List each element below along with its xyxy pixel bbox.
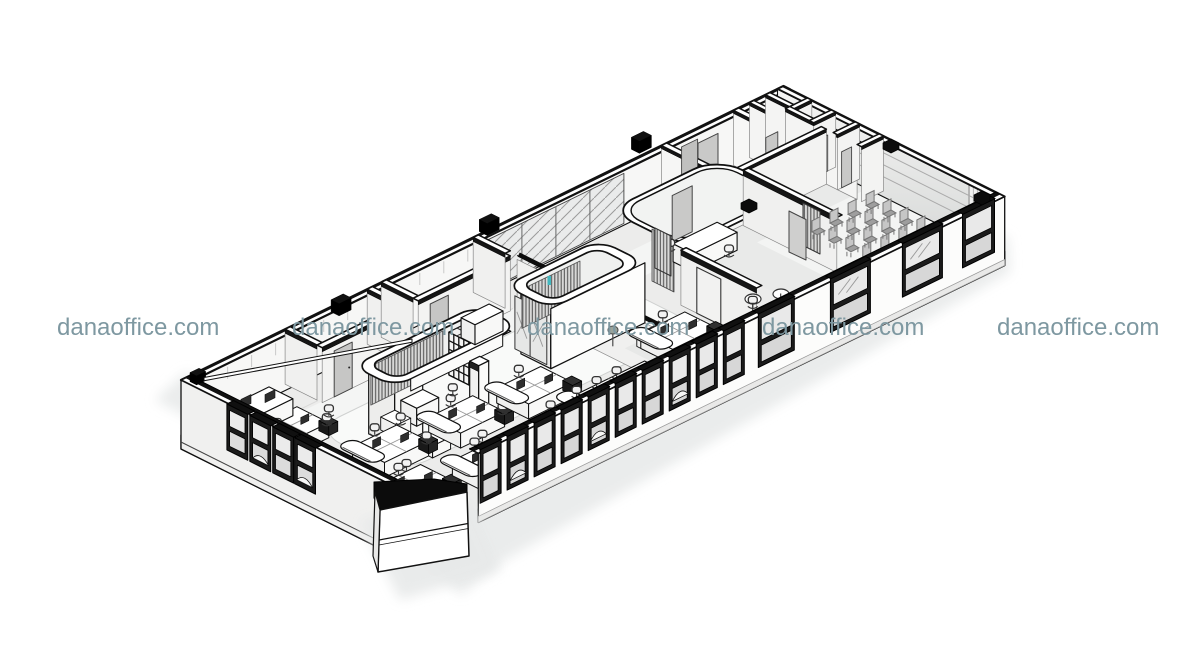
svg-text:danaoffice.com: danaoffice.com <box>57 314 219 341</box>
svg-text:danaoffice.com: danaoffice.com <box>292 314 454 341</box>
svg-text:danaoffice.com: danaoffice.com <box>762 314 924 341</box>
svg-text:danaoffice.com: danaoffice.com <box>997 314 1159 341</box>
svg-text:danaoffice.com: danaoffice.com <box>527 314 689 341</box>
